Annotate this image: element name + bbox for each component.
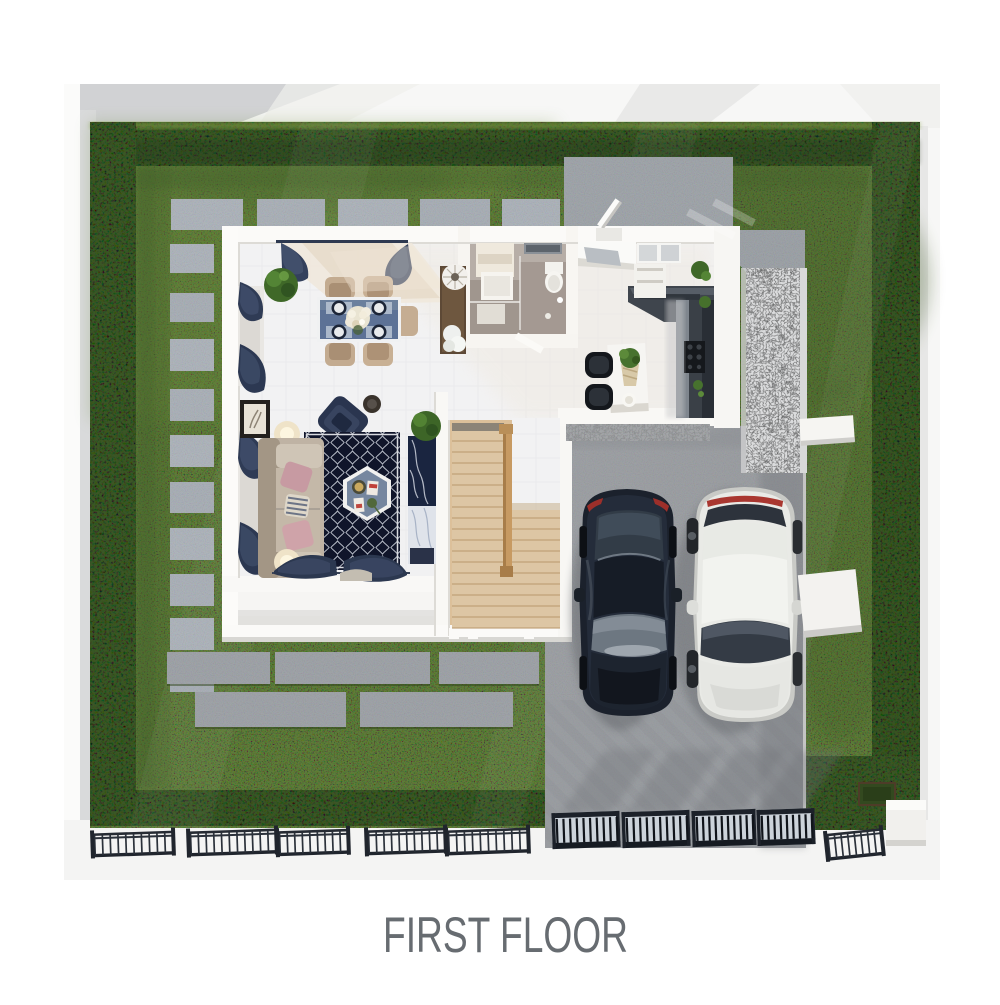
svg-text:FIRST FLOOR: FIRST FLOOR — [383, 907, 628, 963]
